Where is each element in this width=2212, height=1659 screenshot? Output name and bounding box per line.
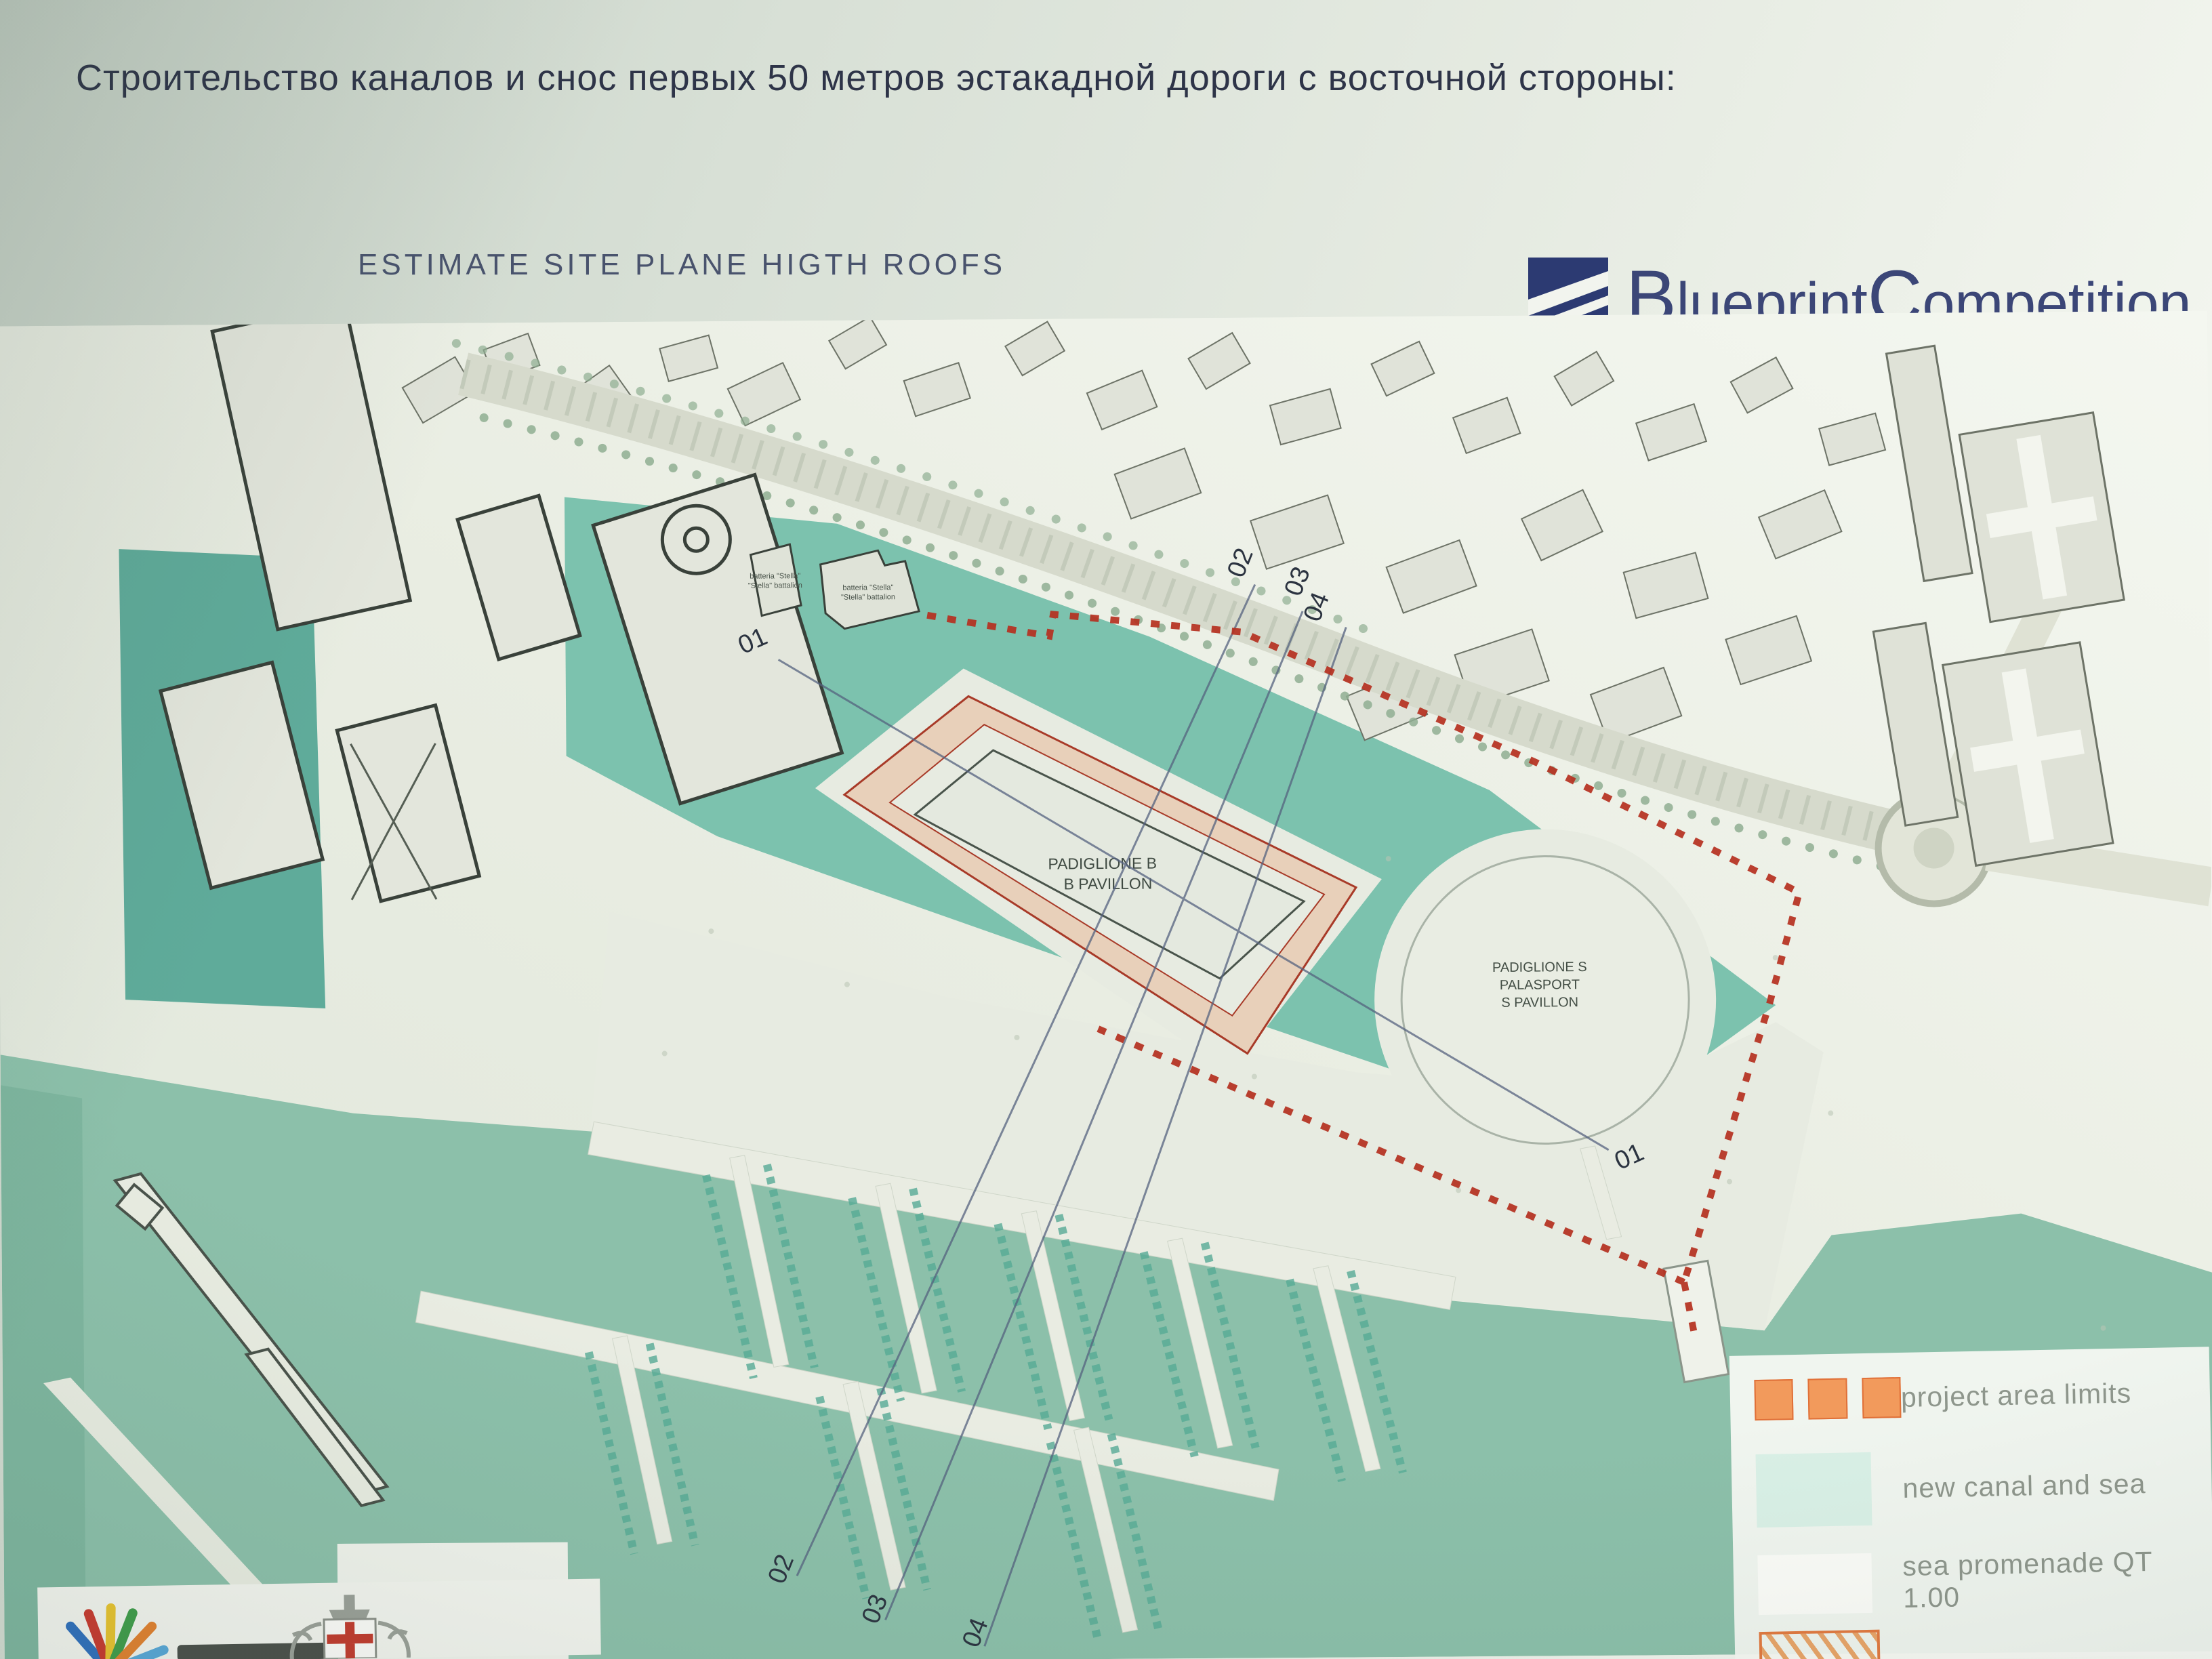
sea-dark-edge [1,1085,86,1659]
legend-item-new-canal: new canal and sea [1756,1447,2147,1528]
svg-text:"Stella" battalion: "Stella" battalion [841,593,895,602]
competition-board-photo: Строительство каналов и снос первых 50 м… [0,0,2212,1659]
sponsor-logos [37,1578,601,1659]
sea-promenade-swatch [1757,1553,1872,1615]
hatched-swatch [1759,1630,1881,1659]
svg-text:PALASPORT: PALASPORT [1500,977,1580,993]
page-title: Строительство каналов и снос первых 50 м… [76,57,2109,99]
roundabout-island [1913,827,1954,868]
svg-text:PADIGLIONE S: PADIGLIONE S [1492,960,1587,975]
project-area-swatch [1754,1377,1901,1420]
legend-label: project area limits [1900,1377,2131,1414]
silo-tower [662,506,731,574]
pavilion-b-label: PADIGLIONE B [1048,854,1157,872]
svg-text:S PAVILLON: S PAVILLON [1501,995,1578,1010]
palasport-label: PADIGLIONE S PALASPORT S PAVILLON [1492,960,1587,1010]
legend-item-project-area: project area limits [1754,1372,2131,1420]
legend-item-hatched [1759,1629,1912,1659]
svg-text:batteria "Stella": batteria "Stella" [842,583,893,592]
legend-label: sea promenade QT 1.00 [1902,1544,2212,1614]
map-legend: project area limits new canal and sea se… [1729,1347,2212,1659]
pavilion-b-label: B PAVILLON [1063,875,1152,893]
legend-item-sea-promenade: sea promenade QT 1.00 [1757,1544,2212,1617]
plan-subtitle: ESTIMATE SITE PLANE HIGTH ROOFS [358,248,1006,282]
legend-label: new canal and sea [1902,1468,2146,1504]
svg-text:batteria "Stella": batteria "Stella" [750,572,800,581]
sponsor-logos-panel [37,1578,601,1659]
svg-text:"Stella" battalion: "Stella" battalion [748,581,802,590]
new-canal-swatch [1756,1452,1872,1528]
starburst-logo-icon [70,1607,164,1659]
